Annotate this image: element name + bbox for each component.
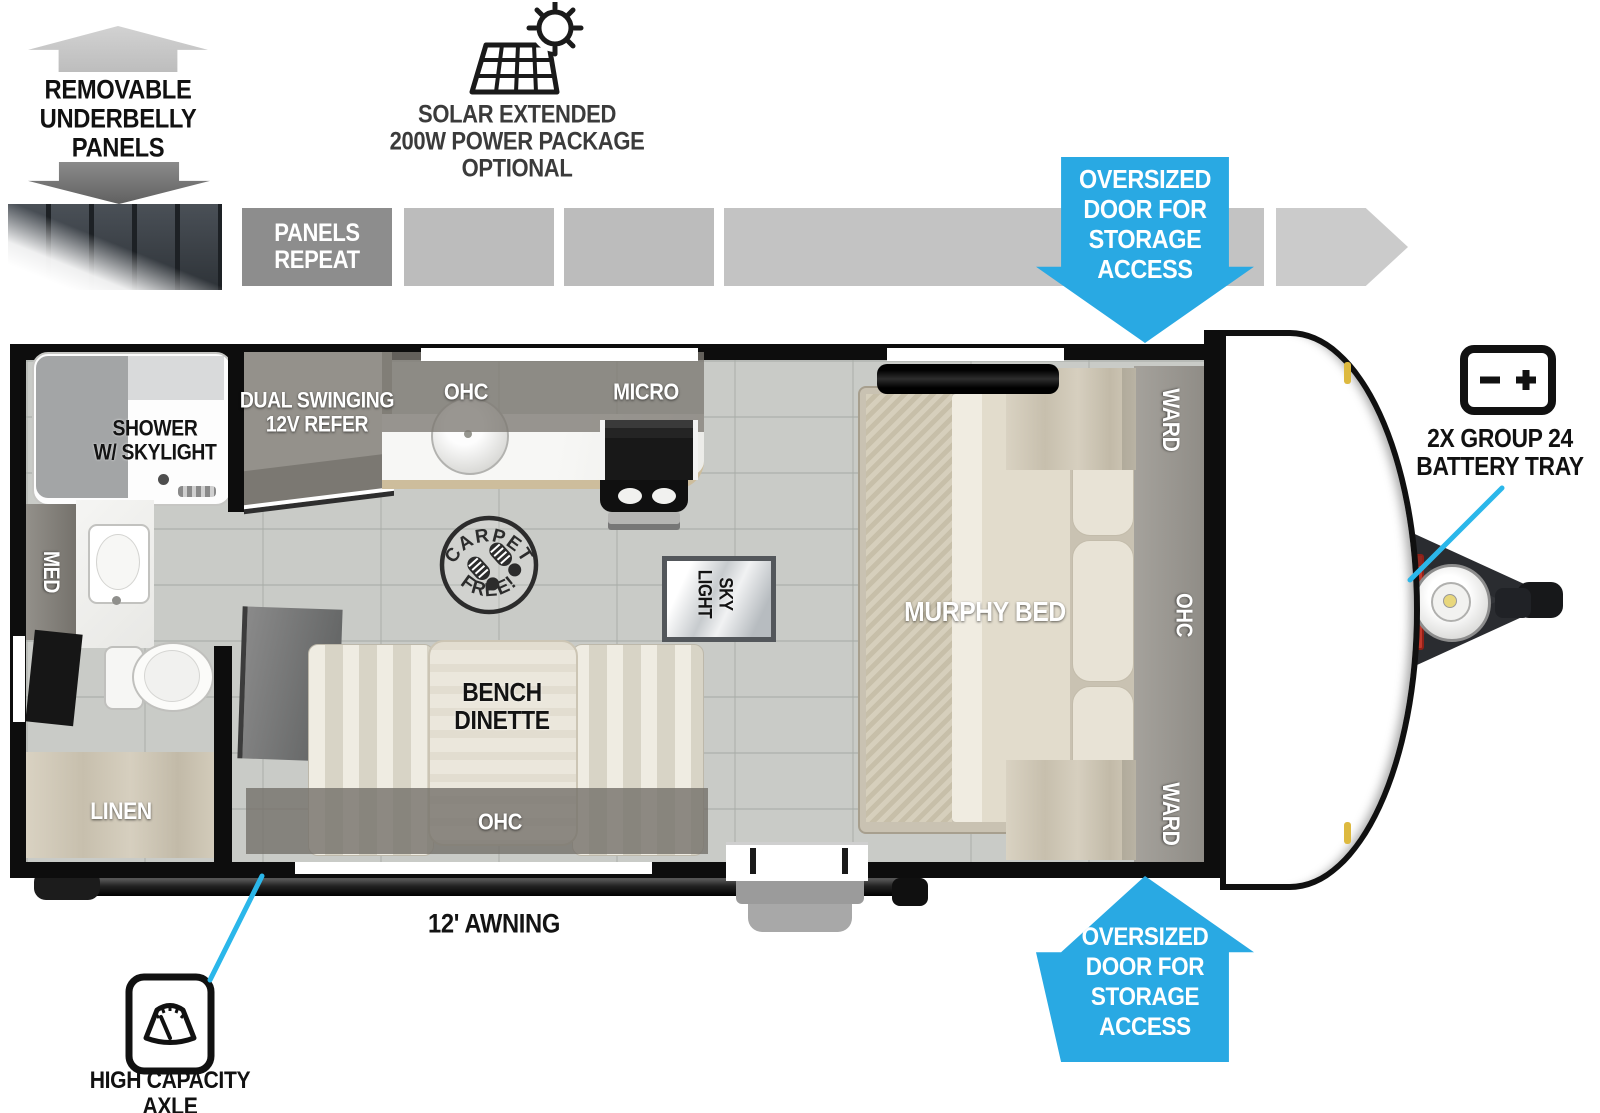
- window-rear: [13, 636, 25, 722]
- underbelly-label: REMOVABLE UNDERBELLY PANELS: [4, 75, 233, 162]
- entry-door-post: [750, 848, 756, 874]
- battery-tray-label: 2X GROUP 24 BATTERY TRAY: [1403, 424, 1597, 480]
- panels-repeat-label: PANELS REPEAT: [274, 220, 359, 274]
- murphy-bed-cushion: [1072, 540, 1134, 682]
- block-arrow-down-icon: [28, 162, 210, 204]
- shower-sprayer: [178, 486, 216, 497]
- roof-vent: [877, 364, 1059, 394]
- bath-wall-bottom: [214, 646, 232, 862]
- battery-terminals-icon: [1458, 342, 1558, 418]
- stove-oven: [600, 420, 698, 480]
- shower-drain: [158, 474, 169, 485]
- awning-end-cap-right: [892, 878, 928, 906]
- toilet-seat: [144, 650, 200, 702]
- entry-door-post: [842, 848, 848, 874]
- ward-top-label: WARD: [1157, 388, 1183, 451]
- window-top-bedroom: [887, 348, 1064, 361]
- kitchen-ohc-label: OHC: [444, 380, 488, 405]
- stove-burner: [652, 488, 676, 504]
- stove-burner: [618, 488, 642, 504]
- dinette-ohc-label: OHC: [478, 810, 522, 835]
- axle-label: HIGH CAPACITY AXLE: [64, 1068, 275, 1113]
- solar-package-label: SOLAR EXTENDED 200W POWER PACKAGE OPTION…: [385, 102, 649, 183]
- med-label: MED: [39, 551, 63, 593]
- entry-step: [736, 878, 864, 904]
- underbelly-panel-segment: [564, 208, 714, 286]
- shower-glass-top: [128, 356, 224, 400]
- ward-bottom-cabinet: [1006, 760, 1136, 860]
- oversized-door-top-arrow: OVERSIZED DOOR FOR STORAGE ACCESS: [1036, 157, 1254, 343]
- underbelly-panel-photo: [8, 204, 222, 290]
- bath-sink-bowl: [96, 534, 140, 590]
- dinette-label: BENCH DINETTE: [454, 678, 549, 734]
- weight-scale-icon: [124, 972, 216, 1076]
- oversized-door-bottom-arrow: OVERSIZED DOOR FOR STORAGE ACCESS: [1036, 876, 1254, 1062]
- micro-label: MICRO: [613, 380, 679, 405]
- front-cap: [1220, 330, 1420, 890]
- bath-faucet: [112, 596, 121, 605]
- underbelly-panel-segment: [404, 208, 554, 286]
- window-top-kitchen: [421, 348, 698, 361]
- underbelly-panel-arrow-end: [1276, 208, 1408, 286]
- floorplan-canvas: REMOVABLE UNDERBELLY PANELS PANELS REPEA…: [0, 0, 1600, 1113]
- tv-panel: [25, 630, 82, 727]
- linen-label: LINEN: [90, 799, 152, 825]
- awning-label: 12' AWNING: [428, 909, 560, 938]
- dinette-ohc-overlay: [246, 788, 708, 854]
- refrigerator-label: DUAL SWINGING 12V REFER: [233, 388, 400, 436]
- ward-bottom-label: WARD: [1157, 782, 1183, 845]
- murphy-bed-label: MURPHY BED: [904, 597, 1066, 627]
- shower-label: SHOWER W/ SKYLIGHT: [67, 416, 243, 464]
- cap-marker-light: [1344, 822, 1351, 844]
- carpet-free-badge: CARPET FREE!: [438, 514, 540, 616]
- stove-base: [608, 512, 680, 530]
- block-arrow-up-icon: [28, 26, 208, 72]
- cap-marker-light: [1344, 362, 1351, 384]
- oversized-door-top-label: OVERSIZED DOOR FOR STORAGE ACCESS: [1047, 164, 1243, 284]
- window-bottom-dinette: [295, 862, 652, 874]
- solar-panel-sun-icon: [455, 2, 595, 97]
- skylight-label: SKY LIGHT: [693, 570, 734, 618]
- entry-step-lower: [748, 904, 852, 932]
- bed-ohc-label: OHC: [1172, 593, 1197, 637]
- oversized-door-bottom-label: OVERSIZED DOOR FOR STORAGE ACCESS: [1047, 922, 1243, 1042]
- propane-tank-valve: [1443, 594, 1457, 608]
